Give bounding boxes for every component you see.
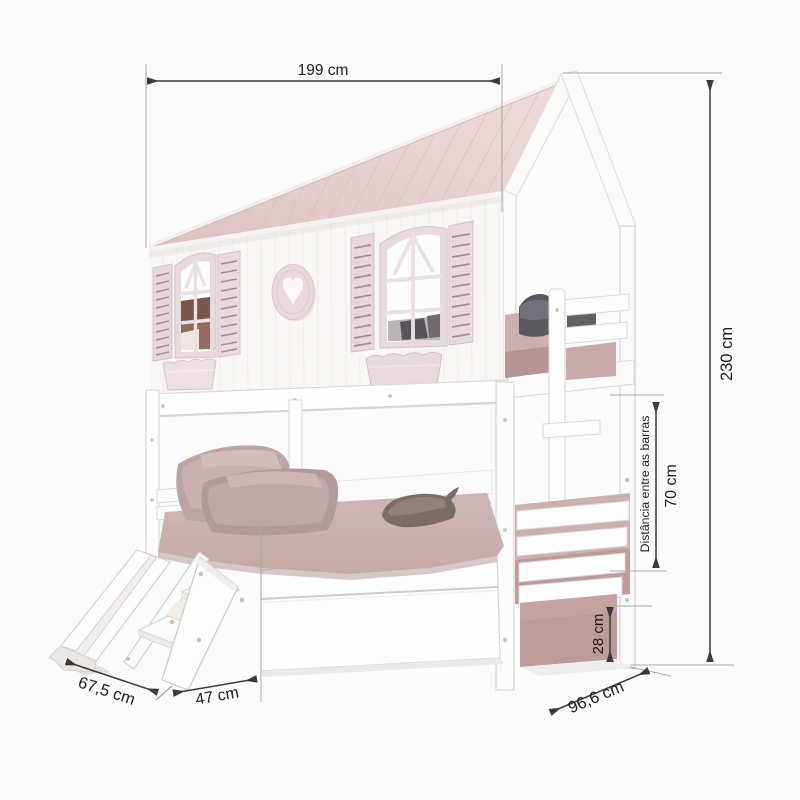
svg-text:28 cm: 28 cm [590, 614, 607, 655]
svg-text:70 cm: 70 cm [663, 464, 680, 508]
svg-text:230 cm: 230 cm [718, 327, 736, 381]
svg-text:199 cm: 199 cm [298, 62, 349, 79]
svg-text:Distância entre as barras: Distância entre as barras [638, 416, 652, 553]
